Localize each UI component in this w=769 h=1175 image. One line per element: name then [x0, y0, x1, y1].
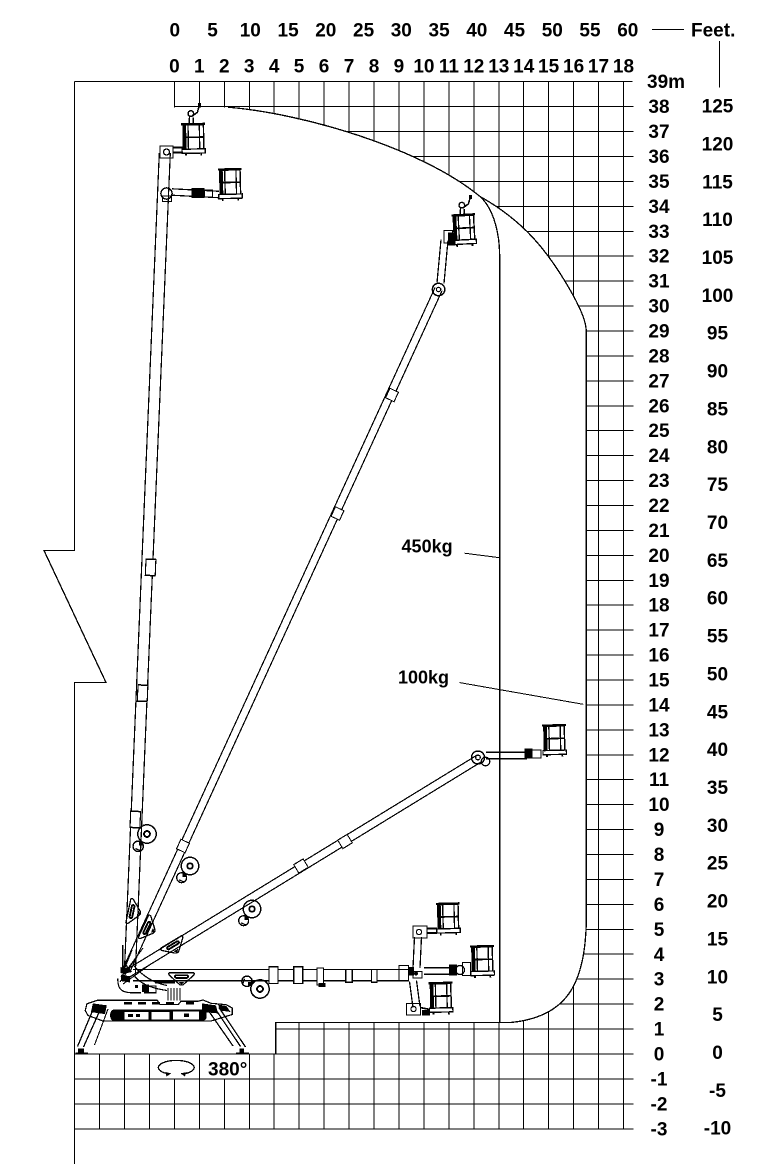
svg-text:105: 105	[702, 248, 734, 269]
svg-text:14: 14	[513, 57, 535, 78]
svg-text:1: 1	[654, 1020, 665, 1041]
svg-text:34: 34	[648, 197, 670, 218]
svg-text:17: 17	[588, 57, 609, 78]
svg-text:37: 37	[648, 122, 669, 143]
svg-text:33: 33	[648, 222, 669, 243]
svg-text:45: 45	[504, 21, 526, 42]
svg-text:80: 80	[707, 437, 728, 458]
svg-text:5: 5	[712, 1005, 723, 1026]
svg-text:-10: -10	[704, 1119, 731, 1140]
svg-text:14: 14	[648, 696, 670, 717]
svg-text:36: 36	[648, 147, 669, 168]
svg-text:2: 2	[219, 57, 230, 78]
svg-text:2: 2	[654, 995, 665, 1016]
svg-text:1: 1	[194, 57, 205, 78]
svg-text:-3: -3	[651, 1119, 668, 1140]
svg-text:25: 25	[648, 421, 670, 442]
svg-text:5: 5	[654, 920, 665, 941]
svg-text:18: 18	[648, 596, 669, 617]
svg-text:38: 38	[648, 97, 669, 118]
svg-text:0: 0	[712, 1043, 723, 1064]
svg-text:30: 30	[707, 816, 728, 837]
svg-text:17: 17	[648, 621, 669, 642]
svg-text:0: 0	[169, 57, 180, 78]
svg-text:110: 110	[702, 210, 733, 231]
svg-text:5: 5	[294, 57, 305, 78]
svg-text:40: 40	[707, 740, 728, 761]
svg-text:95: 95	[707, 324, 729, 345]
svg-text:50: 50	[707, 664, 728, 685]
svg-text:35: 35	[429, 21, 451, 42]
svg-text:25: 25	[353, 21, 375, 42]
svg-text:20: 20	[707, 892, 728, 913]
svg-text:6: 6	[319, 57, 330, 78]
svg-text:13: 13	[488, 57, 509, 78]
svg-text:0: 0	[654, 1045, 665, 1066]
svg-text:18: 18	[613, 57, 634, 78]
svg-text:55: 55	[707, 627, 729, 648]
svg-text:-5: -5	[709, 1081, 726, 1102]
svg-text:35: 35	[648, 172, 670, 193]
svg-text:45: 45	[707, 702, 729, 723]
svg-text:450kg: 450kg	[402, 537, 453, 557]
svg-text:125: 125	[702, 97, 734, 118]
svg-text:9: 9	[654, 820, 665, 841]
svg-text:3: 3	[654, 970, 665, 991]
svg-text:9: 9	[394, 57, 405, 78]
svg-text:30: 30	[391, 21, 412, 42]
svg-text:-1: -1	[651, 1069, 668, 1090]
svg-text:15: 15	[648, 671, 670, 692]
svg-text:29: 29	[648, 322, 669, 343]
svg-text:55: 55	[579, 21, 601, 42]
svg-text:39m: 39m	[647, 72, 685, 93]
svg-text:10: 10	[413, 57, 434, 78]
svg-text:28: 28	[648, 346, 669, 367]
svg-text:12: 12	[463, 57, 484, 78]
svg-text:23: 23	[648, 471, 669, 492]
svg-text:25: 25	[707, 854, 729, 875]
svg-text:19: 19	[648, 571, 669, 592]
svg-text:5: 5	[207, 21, 218, 42]
svg-text:16: 16	[563, 57, 584, 78]
svg-text:-2: -2	[651, 1094, 668, 1115]
svg-text:8: 8	[654, 845, 665, 866]
svg-text:75: 75	[707, 475, 729, 496]
svg-text:15: 15	[707, 929, 729, 950]
svg-text:15: 15	[278, 21, 300, 42]
svg-text:4: 4	[654, 945, 665, 966]
svg-text:16: 16	[648, 646, 669, 667]
svg-text:50: 50	[542, 21, 563, 42]
svg-text:Feet.: Feet.	[691, 21, 735, 42]
svg-text:20: 20	[648, 546, 669, 567]
svg-text:21: 21	[648, 521, 670, 542]
svg-text:31: 31	[648, 272, 670, 293]
svg-text:65: 65	[707, 551, 729, 572]
svg-text:32: 32	[648, 247, 669, 268]
svg-text:3: 3	[244, 57, 255, 78]
svg-text:8: 8	[369, 57, 380, 78]
svg-text:70: 70	[707, 513, 728, 534]
svg-text:380°: 380°	[208, 1060, 247, 1081]
svg-text:12: 12	[648, 745, 669, 766]
svg-text:27: 27	[648, 371, 669, 392]
svg-text:13: 13	[648, 720, 669, 741]
svg-text:6: 6	[654, 895, 665, 916]
svg-text:100: 100	[702, 286, 734, 307]
svg-text:10: 10	[707, 967, 728, 988]
svg-text:10: 10	[648, 795, 669, 816]
svg-text:60: 60	[617, 21, 638, 42]
svg-text:7: 7	[344, 57, 355, 78]
svg-text:90: 90	[707, 362, 728, 383]
svg-text:10: 10	[240, 21, 261, 42]
svg-text:30: 30	[648, 297, 669, 318]
svg-text:100kg: 100kg	[398, 668, 449, 688]
svg-text:35: 35	[707, 778, 729, 799]
svg-text:26: 26	[648, 396, 669, 417]
svg-text:20: 20	[315, 21, 336, 42]
svg-text:60: 60	[707, 589, 728, 610]
svg-text:0: 0	[170, 21, 181, 42]
svg-text:40: 40	[466, 21, 487, 42]
svg-text:4: 4	[269, 57, 280, 78]
svg-text:24: 24	[648, 446, 670, 467]
svg-text:11: 11	[439, 57, 460, 78]
svg-text:11: 11	[649, 770, 670, 791]
svg-text:85: 85	[707, 399, 729, 420]
svg-text:15: 15	[538, 57, 560, 78]
svg-text:120: 120	[702, 135, 734, 156]
svg-text:115: 115	[702, 172, 733, 193]
svg-text:7: 7	[654, 870, 665, 891]
svg-text:22: 22	[648, 496, 669, 517]
